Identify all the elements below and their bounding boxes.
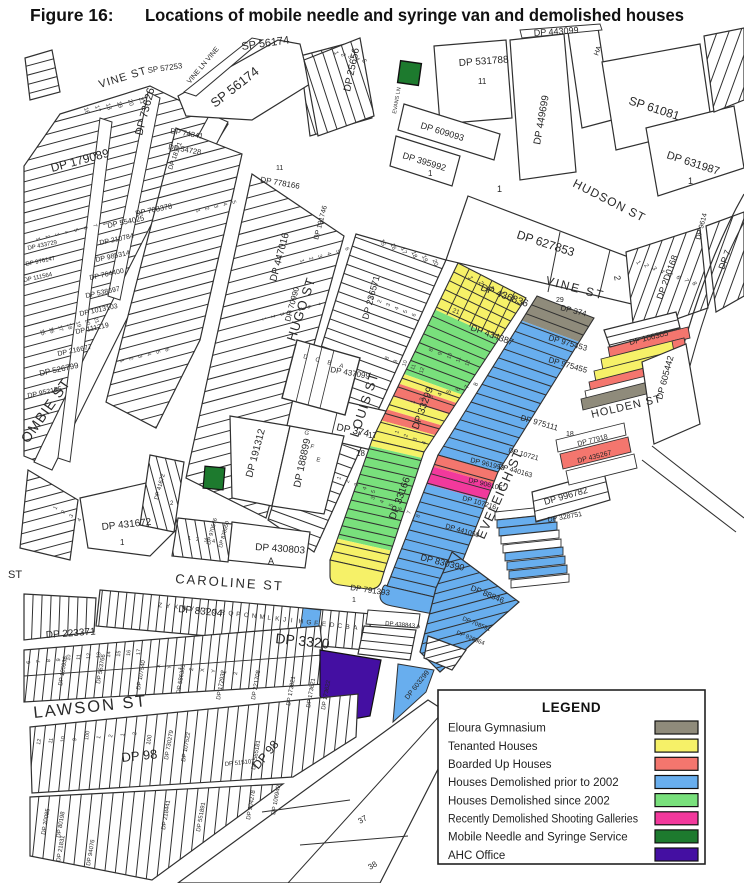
svg-text:2: 2 [233,672,239,676]
svg-text:10: 10 [66,654,73,661]
svg-text:Mobile Needle and Syringe Serv: Mobile Needle and Syringe Service [448,832,628,844]
svg-text:P: P [236,611,241,618]
svg-text:1: 1 [178,667,184,671]
svg-text:G: G [306,619,312,626]
svg-text:ST: ST [8,569,22,581]
svg-text:9: 9 [56,658,62,662]
svg-text:1: 1 [222,671,228,675]
svg-text:B: B [345,624,350,631]
svg-text:N: N [251,613,257,620]
svg-text:17: 17 [368,431,377,440]
svg-text:O: O [244,612,250,619]
svg-text:11: 11 [478,77,487,86]
svg-text:C: C [337,623,343,630]
svg-text:1: 1 [428,169,433,178]
svg-text:T: T [205,607,210,614]
svg-text:29: 29 [556,297,564,304]
svg-text:H: H [298,618,304,625]
svg-text:Figure 16:: Figure 16: [30,5,114,25]
svg-text:7: 7 [36,660,42,664]
svg-text:Q: Q [228,610,234,617]
svg-text:LEGEND: LEGEND [542,700,601,715]
svg-text:R: R [220,609,226,616]
svg-text:Houses Demolished since 2002: Houses Demolished since 2002 [448,795,610,807]
svg-text:15: 15 [116,650,123,657]
svg-text:AHC Office: AHC Office [448,850,505,862]
svg-text:11: 11 [48,737,55,744]
svg-text:16: 16 [126,650,133,657]
svg-text:4: 4 [212,539,215,545]
svg-text:Houses Demolished prior to 200: Houses Demolished prior to 2002 [448,777,619,789]
svg-text:18: 18 [356,449,365,458]
svg-text:F: F [314,620,319,627]
svg-text:17: 17 [136,649,143,656]
svg-text:8: 8 [46,659,52,663]
svg-text:1: 1 [688,176,693,186]
svg-text:Recently Demolished Shooting G: Recently Demolished Shooting Galleries [448,814,638,826]
svg-text:14: 14 [106,651,113,658]
svg-text:12: 12 [36,738,43,745]
svg-text:U: U [197,607,203,614]
svg-text:2: 2 [189,668,195,672]
svg-text:6: 6 [26,661,32,665]
svg-text:D: D [329,622,335,629]
svg-text:11: 11 [76,654,82,660]
svg-text:A: A [268,556,274,566]
svg-text:12: 12 [86,653,93,660]
svg-text:18: 18 [566,431,574,438]
svg-text:1: 1 [352,597,356,604]
svg-text:M: M [259,614,265,621]
svg-text:Boarded Up Houses: Boarded Up Houses [448,759,552,771]
svg-text:Eloura Gymnasium: Eloura Gymnasium [448,723,546,735]
svg-text:10: 10 [60,736,67,743]
svg-text:13: 13 [96,652,103,659]
svg-text:Tenanted Houses: Tenanted Houses [448,741,538,753]
svg-text:Z: Z [158,602,163,609]
svg-text:1: 1 [497,184,502,194]
svg-text:Locations of mobile needle and: Locations of mobile needle and syringe v… [145,5,684,25]
svg-text:J: J [283,616,287,623]
svg-text:1: 1 [188,536,191,542]
svg-text:1: 1 [120,538,125,547]
svg-text:2: 2 [196,537,199,543]
svg-text:11: 11 [276,165,283,172]
svg-text:3: 3 [204,538,207,544]
